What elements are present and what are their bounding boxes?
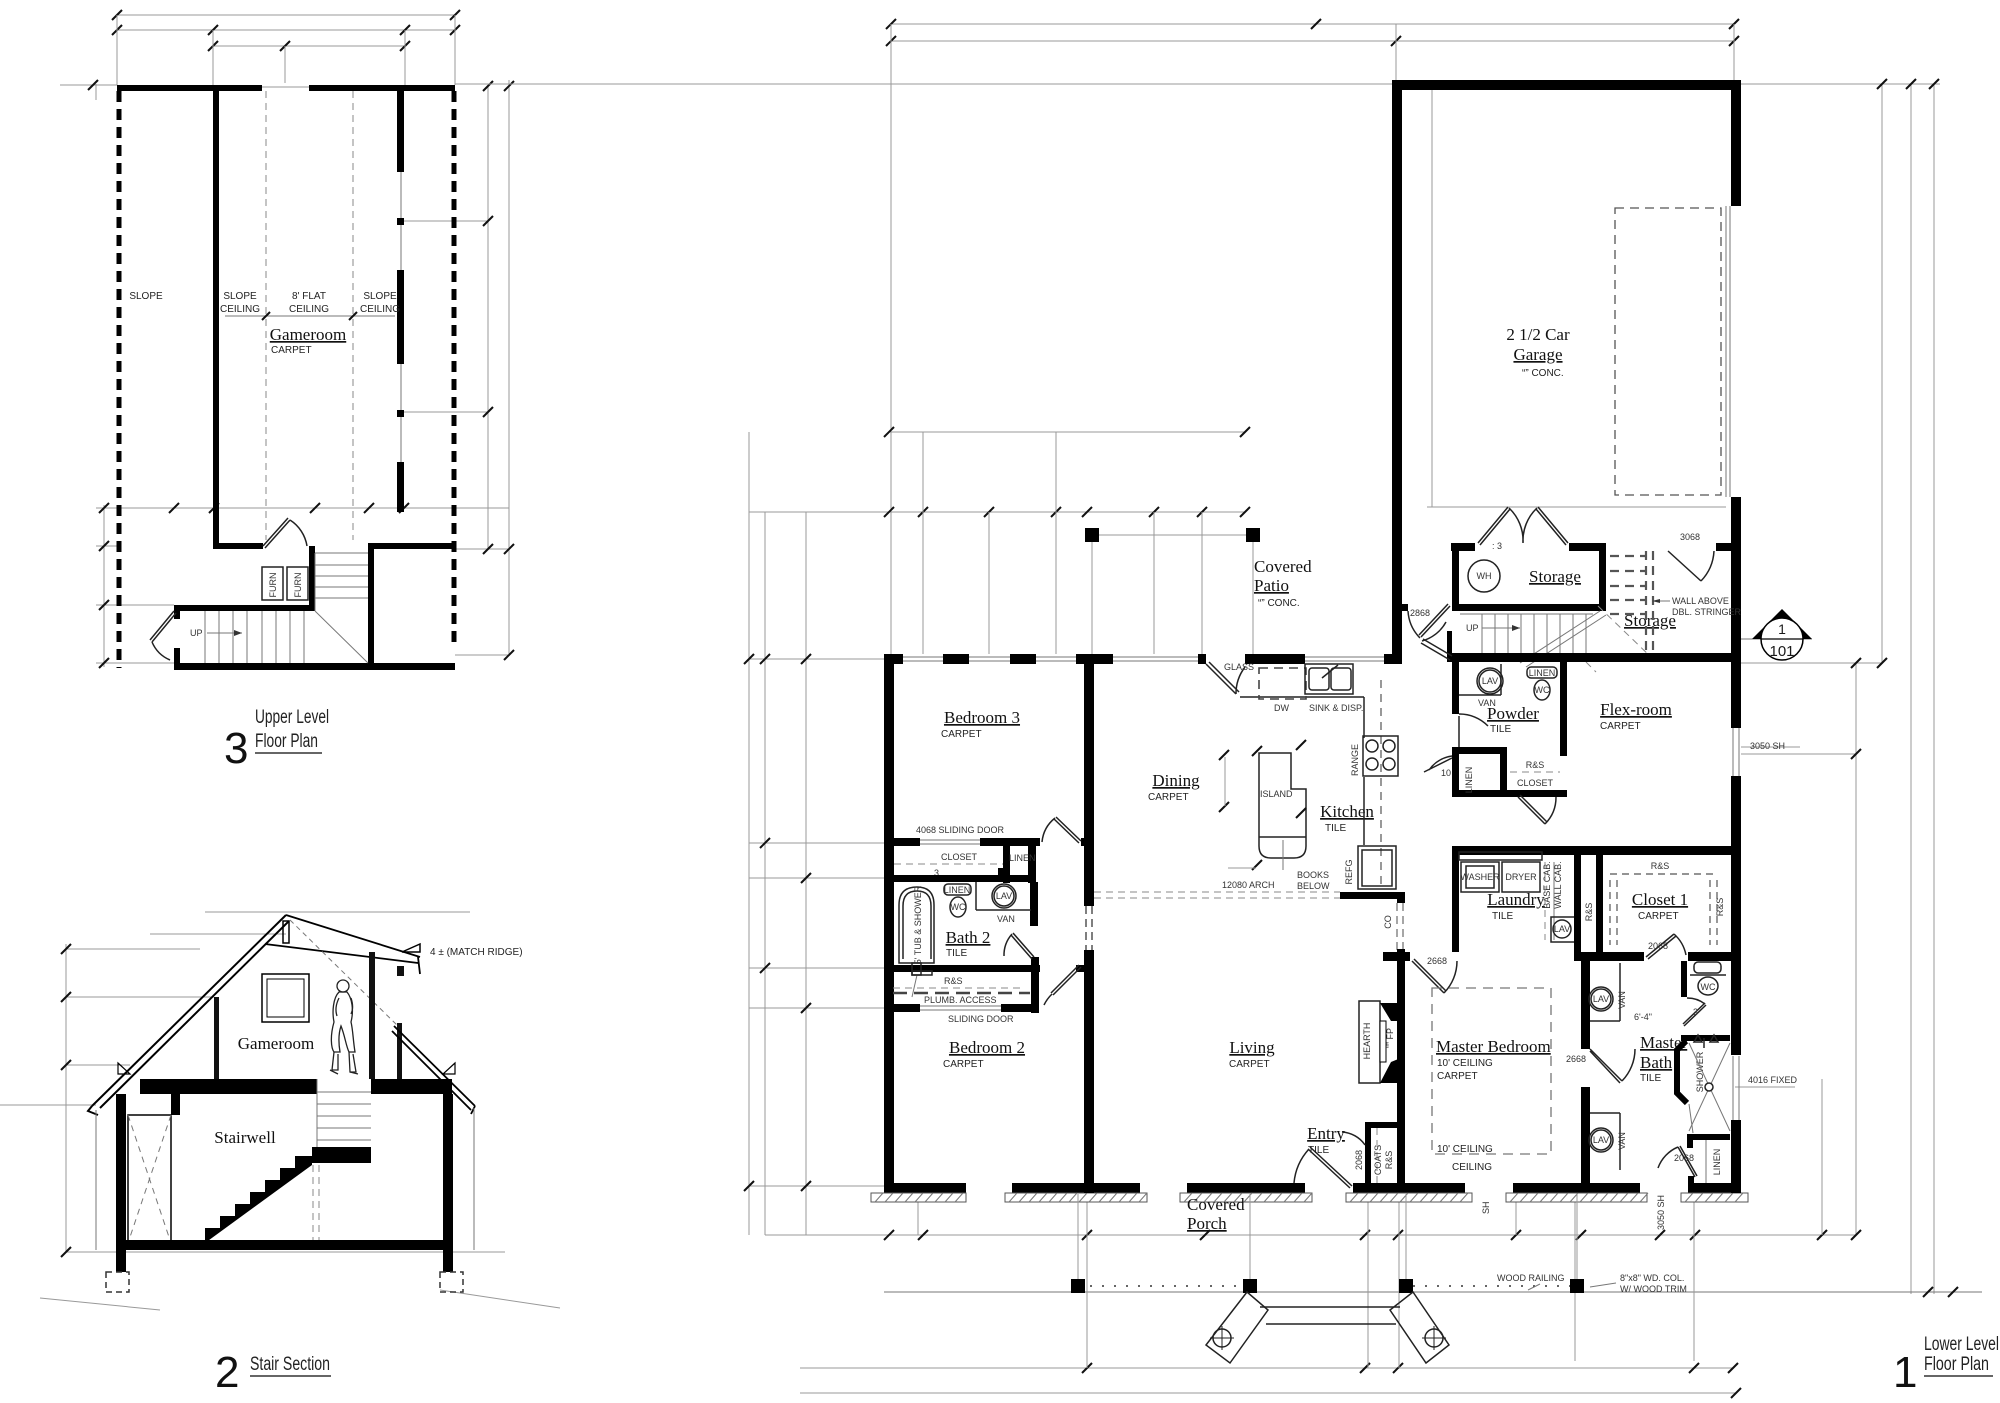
svg-text:R&S: R&S xyxy=(1584,903,1594,922)
svg-text:3: 3 xyxy=(1693,1007,1698,1017)
svg-text:1: 1 xyxy=(1893,1348,1917,1397)
svg-text:COATS: COATS xyxy=(1373,1145,1383,1175)
svg-text:FURN: FURN xyxy=(268,573,278,598)
svg-text:CARPET: CARPET xyxy=(943,1059,984,1070)
svg-text:5' TUB & SHOWER: 5' TUB & SHOWER xyxy=(913,885,923,964)
svg-text:Storage: Storage xyxy=(1529,567,1581,586)
svg-text:R&S: R&S xyxy=(1384,1151,1394,1170)
svg-text:3: 3 xyxy=(224,724,248,773)
svg-text:Entry: Entry xyxy=(1307,1124,1345,1143)
svg-text:101: 101 xyxy=(1769,643,1794,660)
svg-text:LINEN: LINEN xyxy=(944,885,971,895)
svg-text:WALL ABOVE: WALL ABOVE xyxy=(1672,596,1729,606)
svg-text:2668: 2668 xyxy=(1427,956,1447,966)
svg-text:LAV: LAV xyxy=(1593,994,1609,1004)
svg-text:PLUMB. ACCESS: PLUMB. ACCESS xyxy=(924,995,997,1005)
svg-text:10' CEILING: 10' CEILING xyxy=(1437,1144,1493,1155)
svg-text:CARPET: CARPET xyxy=(1600,721,1641,732)
svg-text:SH: SH xyxy=(1481,1201,1491,1214)
svg-text:R&S: R&S xyxy=(944,976,963,986)
svg-text:LAV: LAV xyxy=(996,891,1012,901)
svg-text:W/ WOOD TRIM: W/ WOOD TRIM xyxy=(1620,1284,1687,1294)
svg-text:Floor Plan: Floor Plan xyxy=(1924,1354,1989,1375)
svg-text:RANGE: RANGE xyxy=(1350,744,1360,776)
svg-text:DRYER: DRYER xyxy=(1505,872,1537,882)
svg-text:Dining: Dining xyxy=(1152,771,1200,790)
svg-text:Upper Level: Upper Level xyxy=(255,707,329,728)
svg-text:Gameroom: Gameroom xyxy=(238,1034,314,1053)
svg-text:LAV: LAV xyxy=(1593,1135,1609,1145)
svg-text:“” CONC.: “” CONC. xyxy=(1258,598,1300,609)
svg-text:8' FLAT: 8' FLAT xyxy=(292,291,326,302)
svg-text:WH: WH xyxy=(1477,571,1492,581)
svg-text:4 ± (MATCH RIDGE): 4 ± (MATCH RIDGE) xyxy=(430,947,523,958)
svg-text:Closet 1: Closet 1 xyxy=(1632,890,1688,909)
svg-text:2668: 2668 xyxy=(1566,1054,1586,1064)
svg-text:LINEN: LINEN xyxy=(1712,1149,1722,1176)
svg-text:“” CONC.: “” CONC. xyxy=(1522,368,1564,379)
svg-text:Bedroom 3: Bedroom 3 xyxy=(944,708,1020,727)
svg-text:Flex-room: Flex-room xyxy=(1600,700,1672,719)
svg-text:VAN: VAN xyxy=(1617,1132,1627,1150)
svg-text:4068 SLIDING DOOR: 4068 SLIDING DOOR xyxy=(916,825,1005,835)
svg-text:Covered: Covered xyxy=(1187,1195,1245,1214)
svg-text:SINK & DISP.: SINK & DISP. xyxy=(1309,703,1363,713)
svg-text:12080 ARCH: 12080 ARCH xyxy=(1222,880,1275,890)
svg-text:Bath 2: Bath 2 xyxy=(946,928,991,947)
svg-text:BELOW: BELOW xyxy=(1297,881,1330,891)
svg-text:R&S: R&S xyxy=(1651,861,1670,871)
svg-text:WC: WC xyxy=(1535,685,1550,695)
svg-text:: 3: : 3 xyxy=(1492,541,1502,551)
svg-text:FURN: FURN xyxy=(293,573,303,598)
svg-text:Lower Level: Lower Level xyxy=(1924,1334,1999,1355)
svg-text:8"x8" WD. COL.: 8"x8" WD. COL. xyxy=(1620,1273,1684,1283)
svg-text:DBL. STRINGER: DBL. STRINGER xyxy=(1672,607,1742,617)
svg-text:SLOPE: SLOPE xyxy=(223,291,257,302)
svg-text:SLOPE: SLOPE xyxy=(363,291,397,302)
svg-text:3068: 3068 xyxy=(1680,532,1700,542)
svg-text:Kitchen: Kitchen xyxy=(1320,802,1374,821)
svg-text:HEARTH: HEARTH xyxy=(1362,1023,1372,1060)
svg-text:LAV: LAV xyxy=(1554,924,1570,934)
svg-text:CARPET: CARPET xyxy=(1148,792,1189,803)
svg-text:3050 SH: 3050 SH xyxy=(1656,1195,1666,1230)
svg-text:CARPET: CARPET xyxy=(941,729,982,740)
svg-text:TILE: TILE xyxy=(1640,1073,1661,1084)
svg-text:CO: CO xyxy=(1383,915,1393,929)
svg-text:TILE: TILE xyxy=(1490,724,1511,735)
svg-text:CARPET: CARPET xyxy=(1638,911,1679,922)
svg-text:2068: 2068 xyxy=(1648,941,1668,951)
svg-text:Covered: Covered xyxy=(1254,557,1312,576)
svg-text:Bedroom 2: Bedroom 2 xyxy=(949,1038,1025,1057)
svg-text:“” FP: “” FP xyxy=(1385,1028,1395,1048)
svg-text:BOOKS: BOOKS xyxy=(1297,870,1329,880)
svg-text:CLOSET: CLOSET xyxy=(941,852,978,862)
svg-text:LINEN: LINEN xyxy=(1009,853,1036,863)
svg-text:DW: DW xyxy=(1274,703,1289,713)
svg-text:Porch: Porch xyxy=(1187,1214,1227,1233)
svg-text:TILE: TILE xyxy=(1492,911,1513,922)
svg-text:2 1/2 Car: 2 1/2 Car xyxy=(1506,325,1570,344)
svg-text:TILE: TILE xyxy=(946,948,967,959)
svg-text:Living: Living xyxy=(1229,1038,1275,1057)
svg-text:WC: WC xyxy=(951,902,966,912)
svg-text:LINEN: LINEN xyxy=(1529,668,1556,678)
svg-text:SHOWER: SHOWER xyxy=(1695,1051,1705,1092)
svg-text:REFG: REFG xyxy=(1344,859,1354,884)
svg-text:WOOD RAILING: WOOD RAILING xyxy=(1497,1273,1565,1283)
svg-text:CEILING: CEILING xyxy=(360,304,400,315)
svg-text:Floor Plan: Floor Plan xyxy=(255,731,318,752)
svg-text:BASE CAB.: BASE CAB. xyxy=(1542,861,1552,909)
svg-text:Stair Section: Stair Section xyxy=(250,1354,330,1375)
svg-text:UP: UP xyxy=(190,628,203,638)
svg-text:Laundry: Laundry xyxy=(1487,890,1545,909)
svg-text:CEILING: CEILING xyxy=(1452,1162,1492,1173)
svg-text:10' CEILING: 10' CEILING xyxy=(1437,1058,1493,1069)
svg-text:2068: 2068 xyxy=(1354,1150,1364,1170)
svg-text:LAV: LAV xyxy=(1482,676,1498,686)
svg-text:ISLAND: ISLAND xyxy=(1260,789,1293,799)
svg-text:Master Bedroom: Master Bedroom xyxy=(1436,1037,1551,1056)
svg-text:CLOSET: CLOSET xyxy=(1517,778,1554,788)
svg-text:TILE: TILE xyxy=(1325,823,1346,834)
svg-text:UP: UP xyxy=(1466,623,1479,633)
svg-text:LINEN: LINEN xyxy=(1464,767,1474,794)
svg-text:Powder: Powder xyxy=(1487,704,1539,723)
svg-text:Garage: Garage xyxy=(1513,345,1562,364)
svg-text:Gameroom: Gameroom xyxy=(270,325,346,344)
svg-text:CARPET: CARPET xyxy=(271,345,312,356)
svg-text:10: 10 xyxy=(1441,768,1451,778)
svg-text:GLASS: GLASS xyxy=(1224,662,1254,672)
svg-text:CARPET: CARPET xyxy=(1437,1071,1478,1082)
svg-text:WASHER: WASHER xyxy=(1460,872,1500,882)
svg-text:3050 SH: 3050 SH xyxy=(1750,741,1785,751)
svg-text:4016 FIXED: 4016 FIXED xyxy=(1748,1075,1798,1085)
svg-text:2: 2 xyxy=(215,1348,239,1397)
svg-text:CEILING: CEILING xyxy=(289,304,329,315)
svg-text:Bath: Bath xyxy=(1640,1053,1673,1072)
svg-text:Stairwell: Stairwell xyxy=(214,1128,276,1147)
svg-text:Patio: Patio xyxy=(1254,576,1289,595)
svg-text:WC: WC xyxy=(1701,982,1716,992)
svg-text:SLIDING DOOR: SLIDING DOOR xyxy=(948,1014,1014,1024)
svg-text:1: 1 xyxy=(1778,621,1786,637)
svg-text:VAN: VAN xyxy=(1617,991,1627,1009)
svg-text:2868: 2868 xyxy=(1410,608,1430,618)
svg-text:R&S: R&S xyxy=(1526,760,1545,770)
svg-text:SLOPE: SLOPE xyxy=(129,291,163,302)
svg-text:CARPET: CARPET xyxy=(1229,1059,1270,1070)
svg-text:VAN: VAN xyxy=(997,914,1015,924)
svg-text:6'-4": 6'-4" xyxy=(1634,1012,1652,1022)
svg-text:CEILING: CEILING xyxy=(220,304,260,315)
